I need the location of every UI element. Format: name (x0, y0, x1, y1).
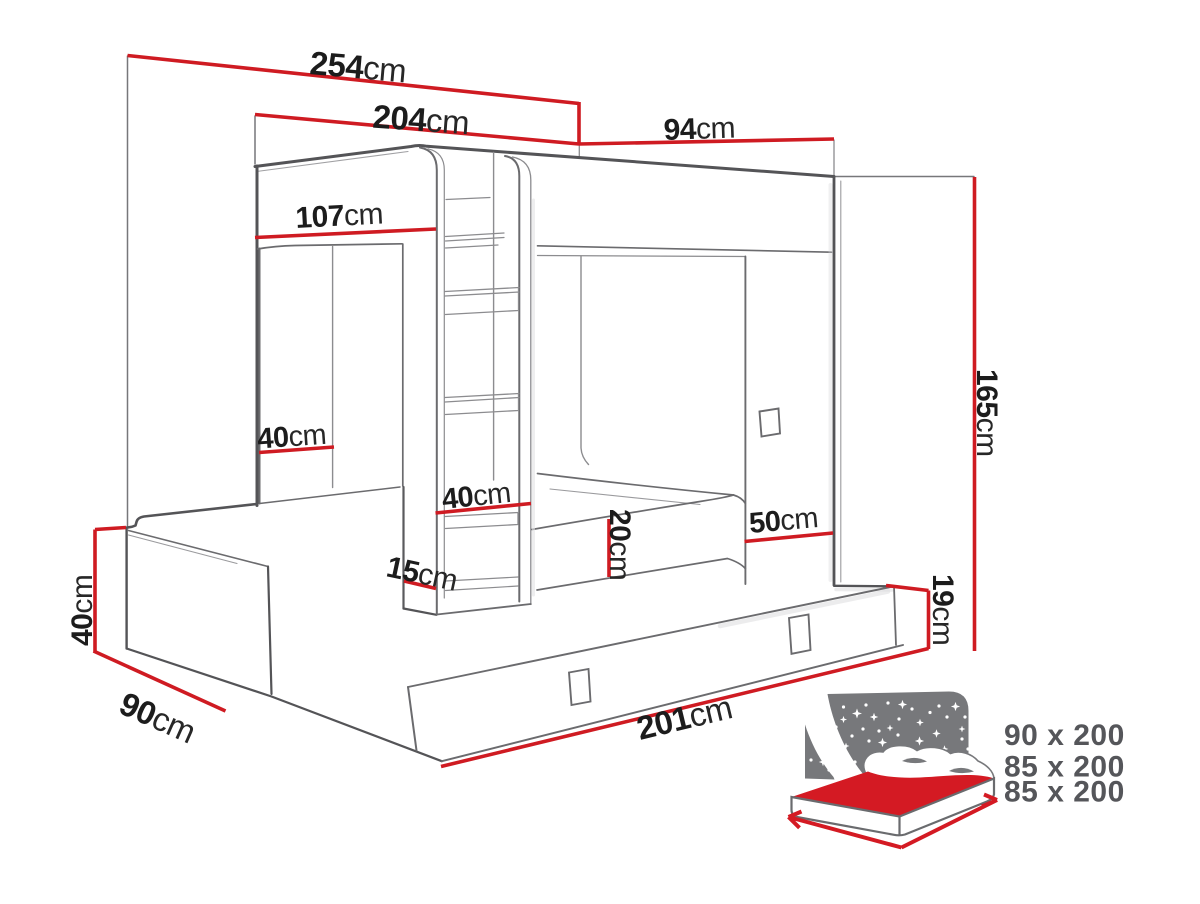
svg-text:50cm: 50cm (748, 502, 819, 540)
svg-text:40cm: 40cm (66, 575, 99, 646)
svg-text:40cm: 40cm (256, 419, 327, 456)
svg-text:94cm: 94cm (663, 112, 735, 147)
svg-text:19cm: 19cm (926, 574, 959, 645)
svg-text:20cm: 20cm (603, 509, 636, 580)
svg-text:107cm: 107cm (295, 197, 384, 235)
svg-text:204cm: 204cm (372, 98, 471, 142)
svg-text:85 x 200: 85 x 200 (1004, 776, 1125, 809)
svg-text:90 x 200: 90 x 200 (1004, 719, 1125, 752)
svg-text:165cm: 165cm (970, 369, 1003, 457)
